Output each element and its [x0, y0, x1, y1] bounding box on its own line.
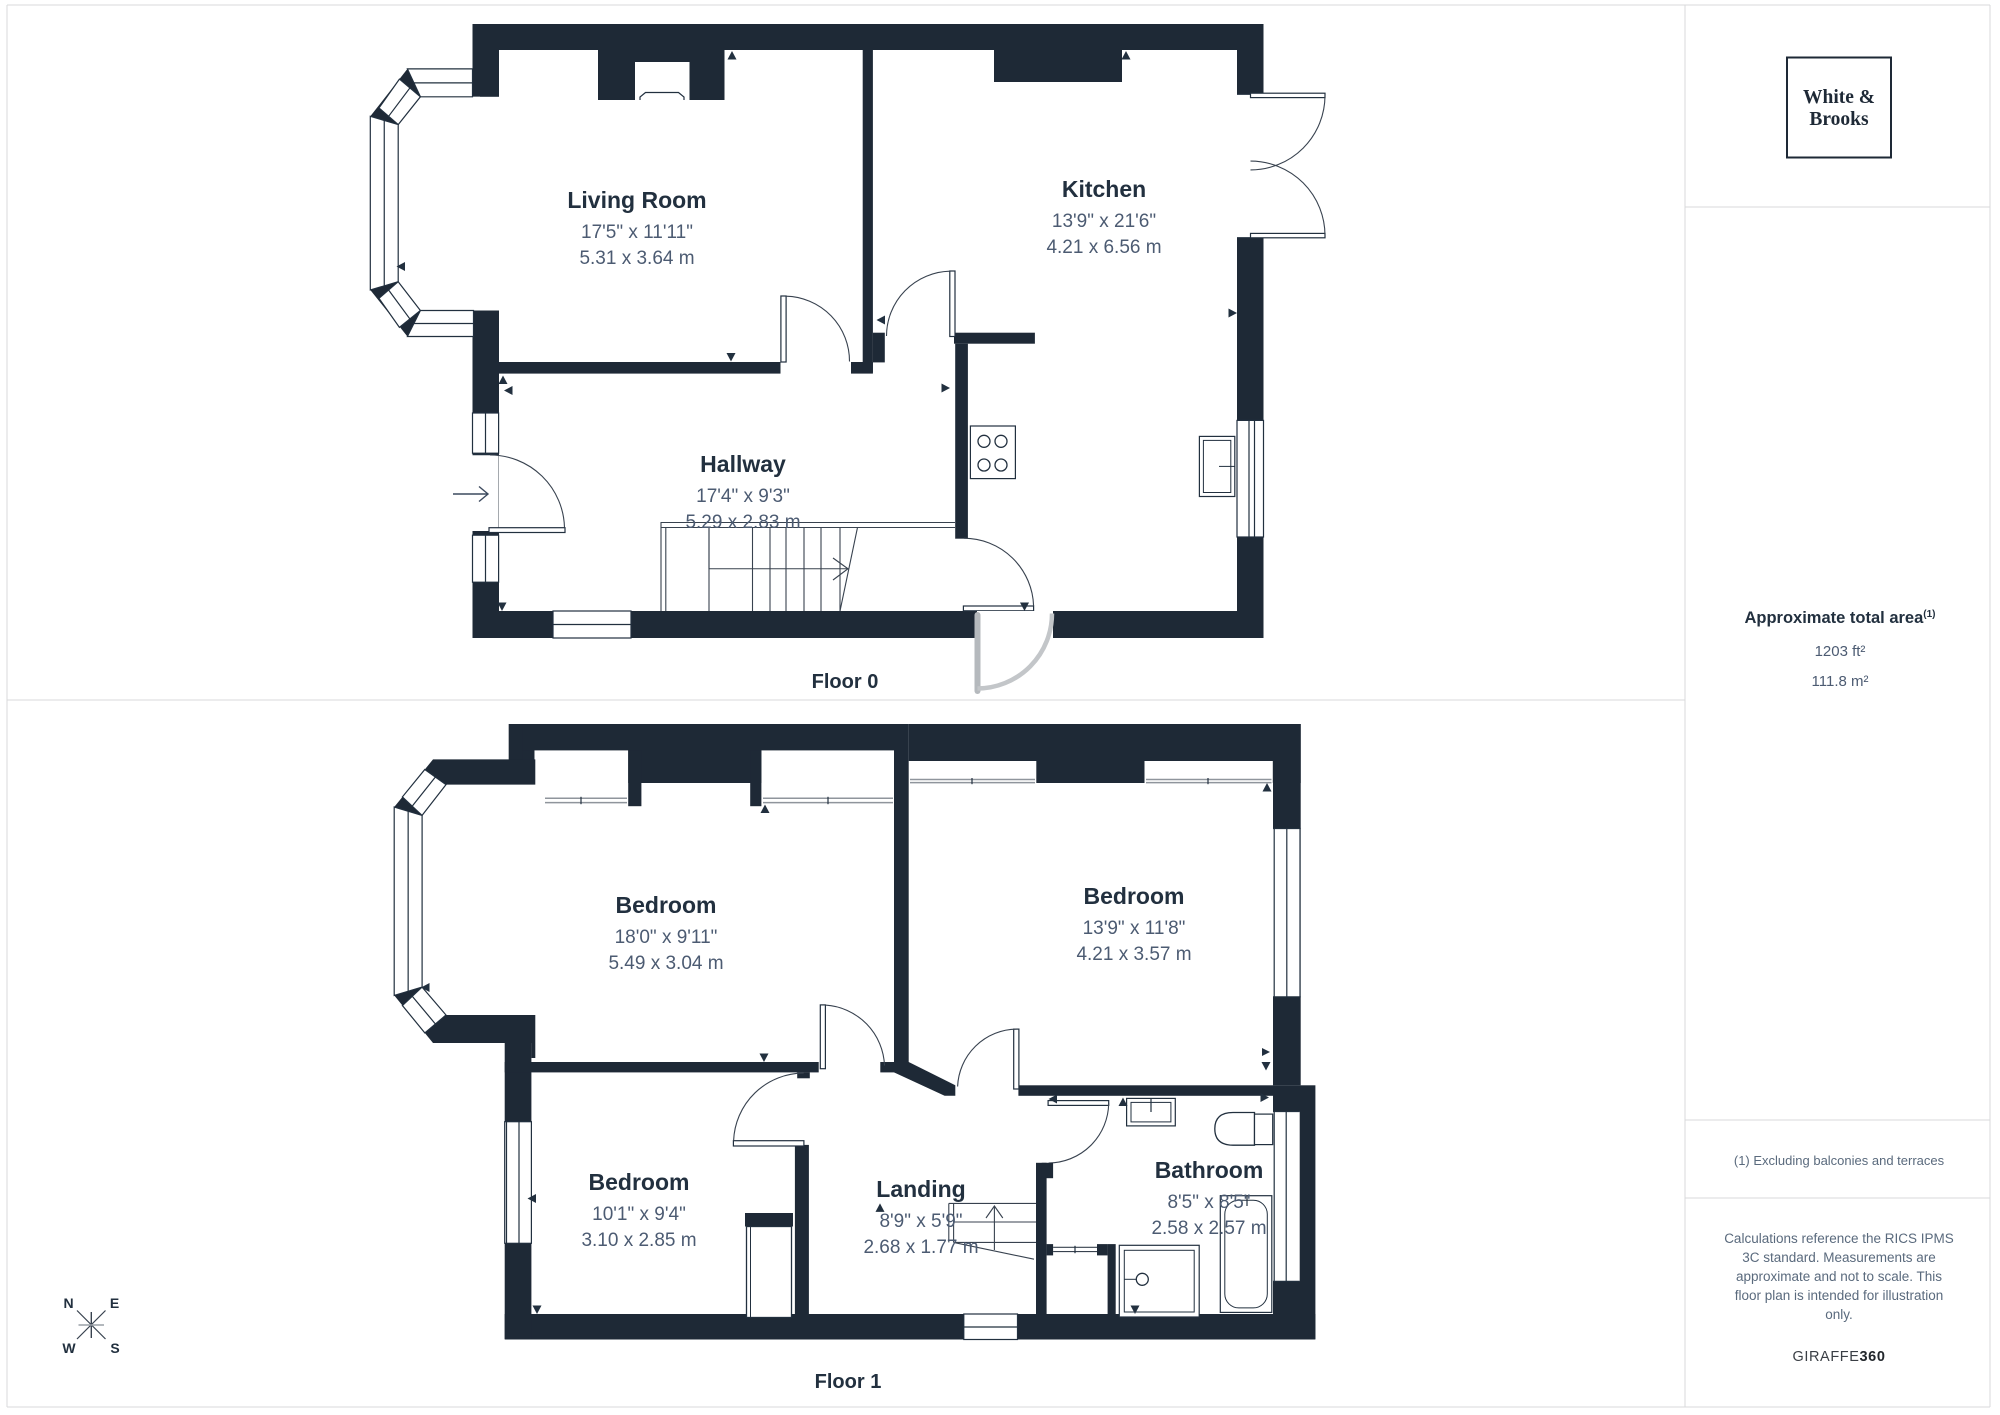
svg-text:17'4" x 9'3": 17'4" x 9'3": [696, 486, 790, 507]
svg-text:18'0" x 9'11": 18'0" x 9'11": [615, 927, 718, 948]
svg-text:Bedroom: Bedroom: [589, 1169, 690, 1195]
svg-text:Bathroom: Bathroom: [1155, 1157, 1264, 1183]
svg-text:approximate and not to scale.: approximate and not to scale. This: [1736, 1269, 1942, 1284]
svg-text:5.31 x 3.64 m: 5.31 x 3.64 m: [579, 248, 694, 269]
svg-text:3.10 x 2.85 m: 3.10 x 2.85 m: [581, 1230, 696, 1251]
svg-text:S: S: [110, 1340, 119, 1356]
svg-text:Floor 0: Floor 0: [812, 671, 879, 693]
svg-text:Kitchen: Kitchen: [1062, 176, 1146, 202]
svg-text:Calculations reference the RIC: Calculations reference the RICS IPMS: [1724, 1231, 1954, 1246]
svg-text:5.49 x 3.04 m: 5.49 x 3.04 m: [608, 953, 723, 974]
svg-text:13'9" x 21'6": 13'9" x 21'6": [1052, 211, 1156, 232]
svg-text:Landing: Landing: [876, 1176, 965, 1202]
svg-text:N: N: [63, 1295, 73, 1311]
svg-text:only.: only.: [1825, 1307, 1853, 1322]
svg-text:(1) Excluding balconies and te: (1) Excluding balconies and terraces: [1734, 1153, 1945, 1168]
svg-text:10'1" x 9'4": 10'1" x 9'4": [592, 1204, 686, 1225]
svg-text:Hallway: Hallway: [700, 451, 786, 477]
svg-text:Living Room: Living Room: [567, 187, 706, 213]
svg-text:Bedroom: Bedroom: [616, 892, 717, 918]
svg-text:4.21 x 6.56 m: 4.21 x 6.56 m: [1046, 237, 1161, 258]
svg-text:White &: White &: [1803, 87, 1875, 108]
svg-text:4.21 x 3.57 m: 4.21 x 3.57 m: [1076, 944, 1191, 965]
svg-text:E: E: [110, 1295, 119, 1311]
svg-text:111.8 m²: 111.8 m²: [1812, 673, 1869, 690]
svg-text:Bedroom: Bedroom: [1084, 883, 1185, 909]
svg-text:Approximate total area(1): Approximate total area(1): [1744, 609, 1935, 627]
svg-text:W: W: [62, 1340, 76, 1356]
svg-text:8'9" x 5'9": 8'9" x 5'9": [879, 1211, 962, 1232]
svg-text:2.58 x 2.57 m: 2.58 x 2.57 m: [1151, 1218, 1266, 1239]
svg-text:17'5" x 11'11": 17'5" x 11'11": [581, 222, 693, 243]
svg-text:2.68 x 1.77 m: 2.68 x 1.77 m: [863, 1237, 978, 1258]
svg-text:5.29 x 2.83 m: 5.29 x 2.83 m: [685, 512, 800, 533]
svg-text:1203 ft²: 1203 ft²: [1815, 643, 1866, 660]
svg-text:13'9" x 11'8": 13'9" x 11'8": [1083, 918, 1186, 939]
svg-text:3C standard. Measurements are: 3C standard. Measurements are: [1742, 1250, 1936, 1265]
svg-text:Floor 1: Floor 1: [815, 1371, 882, 1393]
svg-text:8'5" x 8'5": 8'5" x 8'5": [1167, 1192, 1250, 1213]
svg-text:Brooks: Brooks: [1809, 109, 1869, 130]
svg-text:GIRAFFE360: GIRAFFE360: [1792, 1349, 1885, 1365]
svg-text:floor plan is intended for ill: floor plan is intended for illustration: [1735, 1288, 1944, 1303]
